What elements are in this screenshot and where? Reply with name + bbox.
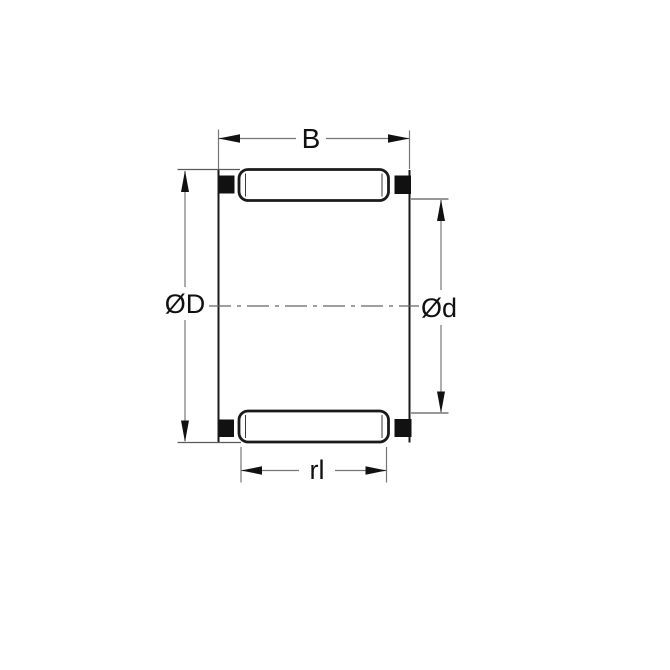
b-dimension: B	[219, 123, 410, 169]
od-dimension: ØD	[165, 171, 206, 443]
od-label: ØD	[165, 289, 206, 319]
bottom-roller-body	[239, 411, 389, 442]
bearing-diagram: B ØD Ød rl	[0, 0, 670, 670]
b-label: B	[302, 123, 321, 154]
id-dimension: Ød	[421, 200, 457, 414]
cage-block-top-left	[219, 176, 235, 194]
rl-arrow-right-icon	[366, 466, 387, 474]
id-arrow-down-icon	[437, 392, 445, 414]
b-arrow-left-icon	[219, 134, 241, 142]
b-arrow-right-icon	[388, 134, 410, 142]
bottom-roller	[239, 411, 389, 442]
cage-block-bottom-left	[219, 420, 234, 438]
top-roller	[239, 170, 389, 201]
od-arrow-down-icon	[181, 421, 189, 443]
od-arrow-up-icon	[181, 171, 189, 193]
id-label: Ød	[421, 293, 457, 323]
cage-block-top-right	[395, 176, 412, 195]
rl-label: rl	[310, 455, 325, 485]
cage-block-bottom-right	[395, 419, 412, 437]
id-arrow-up-icon	[437, 200, 445, 222]
rl-arrow-left-icon	[241, 466, 262, 474]
rl-dimension: rl	[241, 447, 387, 485]
drawing-canvas: B ØD Ød rl	[0, 0, 670, 670]
top-roller-body	[239, 170, 389, 201]
